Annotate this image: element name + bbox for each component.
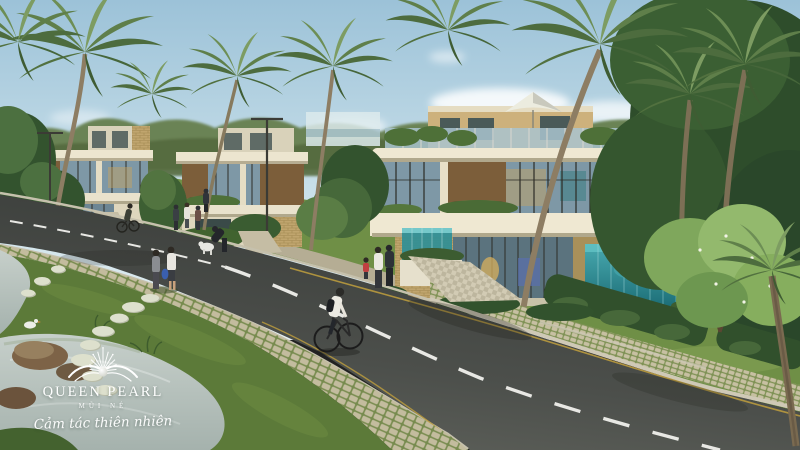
brand-tagline: Cảm tác thiên nhiên xyxy=(18,413,188,433)
pearl-burst-icon xyxy=(63,341,143,387)
brand-title: QUEEN PEARL xyxy=(18,385,188,400)
distant-pedestrians xyxy=(173,203,201,230)
distant-sea-haze xyxy=(306,112,380,146)
brand-subtitle: MŨI NÉ xyxy=(18,402,188,410)
brand-logo: QUEEN PEARL MŨI NÉ Cảm tác thiên nhiên xyxy=(18,341,188,431)
render-canvas: QUEEN PEARL MŨI NÉ Cảm tác thiên nhiên xyxy=(0,0,800,450)
